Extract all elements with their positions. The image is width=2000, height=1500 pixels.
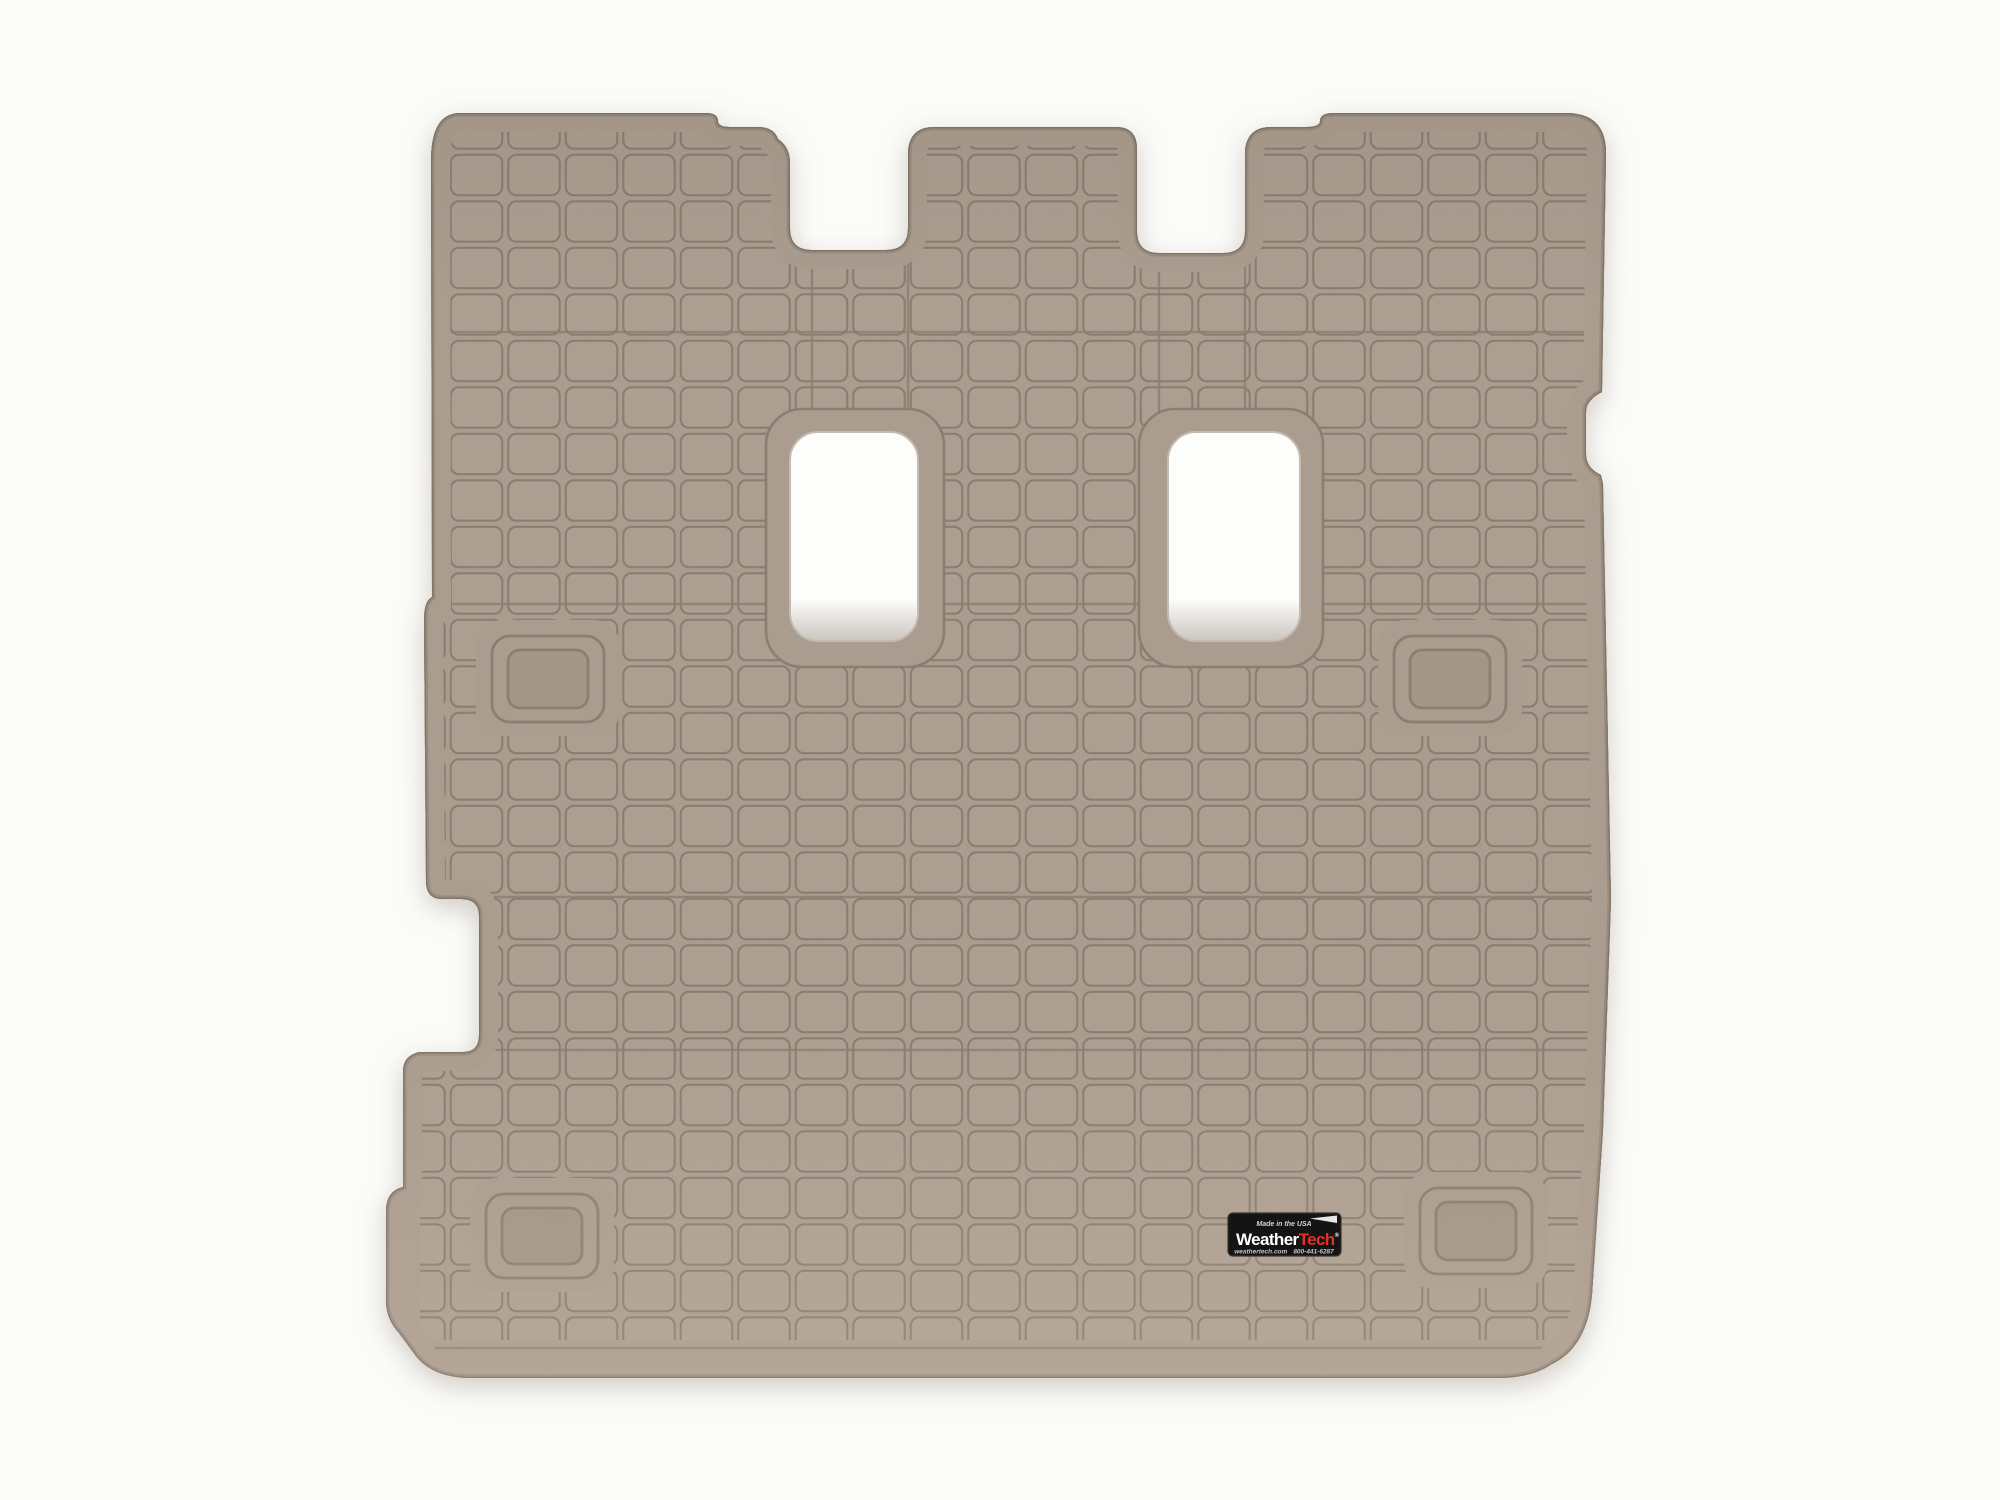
badge-made-in-text: Made in the USA <box>1256 1221 1311 1228</box>
weathertech-badge: Made in the USA WeatherTech® weathertech… <box>1228 1213 1341 1256</box>
badge-contact-text: weathertech.com800-441-6287 <box>1234 1249 1334 1256</box>
cargo-liner-illustration: Made in the USA WeatherTech® weathertech… <box>0 0 2000 1500</box>
badge-website: weathertech.com <box>1234 1249 1287 1256</box>
rubber-grain <box>380 100 1620 1390</box>
product-photo-canvas: Made in the USA WeatherTech® weathertech… <box>0 0 2000 1500</box>
badge-brand-tech: Tech <box>1299 1230 1335 1249</box>
badge-phone: 800-441-6287 <box>1293 1249 1334 1256</box>
badge-brand-text: WeatherTech® <box>1236 1230 1340 1249</box>
badge-brand-weather: Weather <box>1236 1230 1300 1249</box>
